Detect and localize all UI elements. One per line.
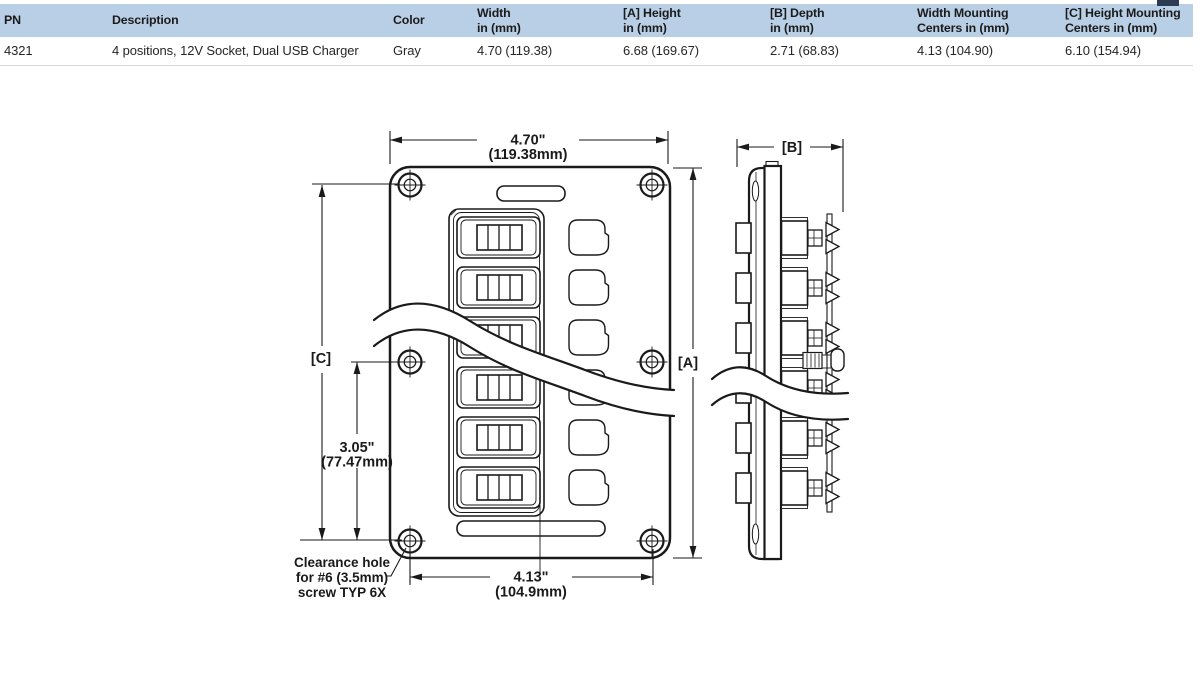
side-back-plate xyxy=(765,166,782,559)
side-switch-row-2 xyxy=(736,268,839,309)
clearance-note-line1: Clearance hole xyxy=(294,555,391,570)
side-slot-top xyxy=(752,181,758,201)
bottom-slot xyxy=(457,521,605,536)
technical-drawing: 4.70" (119.38mm) [A] [C] 3.05" (77.47mm)… xyxy=(0,0,1200,698)
rocker-switch-1 xyxy=(457,217,540,258)
terminal-stud xyxy=(803,349,844,371)
clearance-note-line2: for #6 (3.5mm) xyxy=(296,570,388,585)
side-switch-row-6 xyxy=(736,468,839,509)
side-switch-row-5 xyxy=(736,418,839,459)
datasheet-page: PN Description Color Widthin (mm) [A] He… xyxy=(0,0,1200,698)
mount-height-mm-label: (77.47mm) xyxy=(321,455,393,471)
breaker-cutout-1 xyxy=(569,220,609,255)
height-ref-label: [A] xyxy=(678,356,698,372)
rocker-switch-2 xyxy=(457,267,540,308)
side-slot-bottom xyxy=(752,524,758,544)
breaker-cutout-2 xyxy=(569,270,609,305)
clearance-note-line3: screw TYP 6X xyxy=(298,585,386,600)
breaker-cutout-5 xyxy=(569,420,609,455)
rocker-switch-5 xyxy=(457,417,540,458)
mount-height-ref-label: [C] xyxy=(311,351,331,367)
mount-width-mm-label: (104.9mm) xyxy=(495,585,567,601)
rocker-switch-6 xyxy=(457,467,540,508)
side-view xyxy=(712,162,848,560)
side-switch-row-1 xyxy=(736,218,839,259)
breaker-cutout-6 xyxy=(569,470,609,505)
side-switch-row-3 xyxy=(736,318,839,359)
front-view xyxy=(374,167,674,573)
depth-ref-label: [B] xyxy=(782,140,802,156)
top-slot xyxy=(497,186,565,201)
mount-width-in-label: 4.13" xyxy=(513,570,548,586)
width-dim-mm-label: (119.38mm) xyxy=(489,147,568,163)
breaker-cutout-3 xyxy=(569,320,609,355)
